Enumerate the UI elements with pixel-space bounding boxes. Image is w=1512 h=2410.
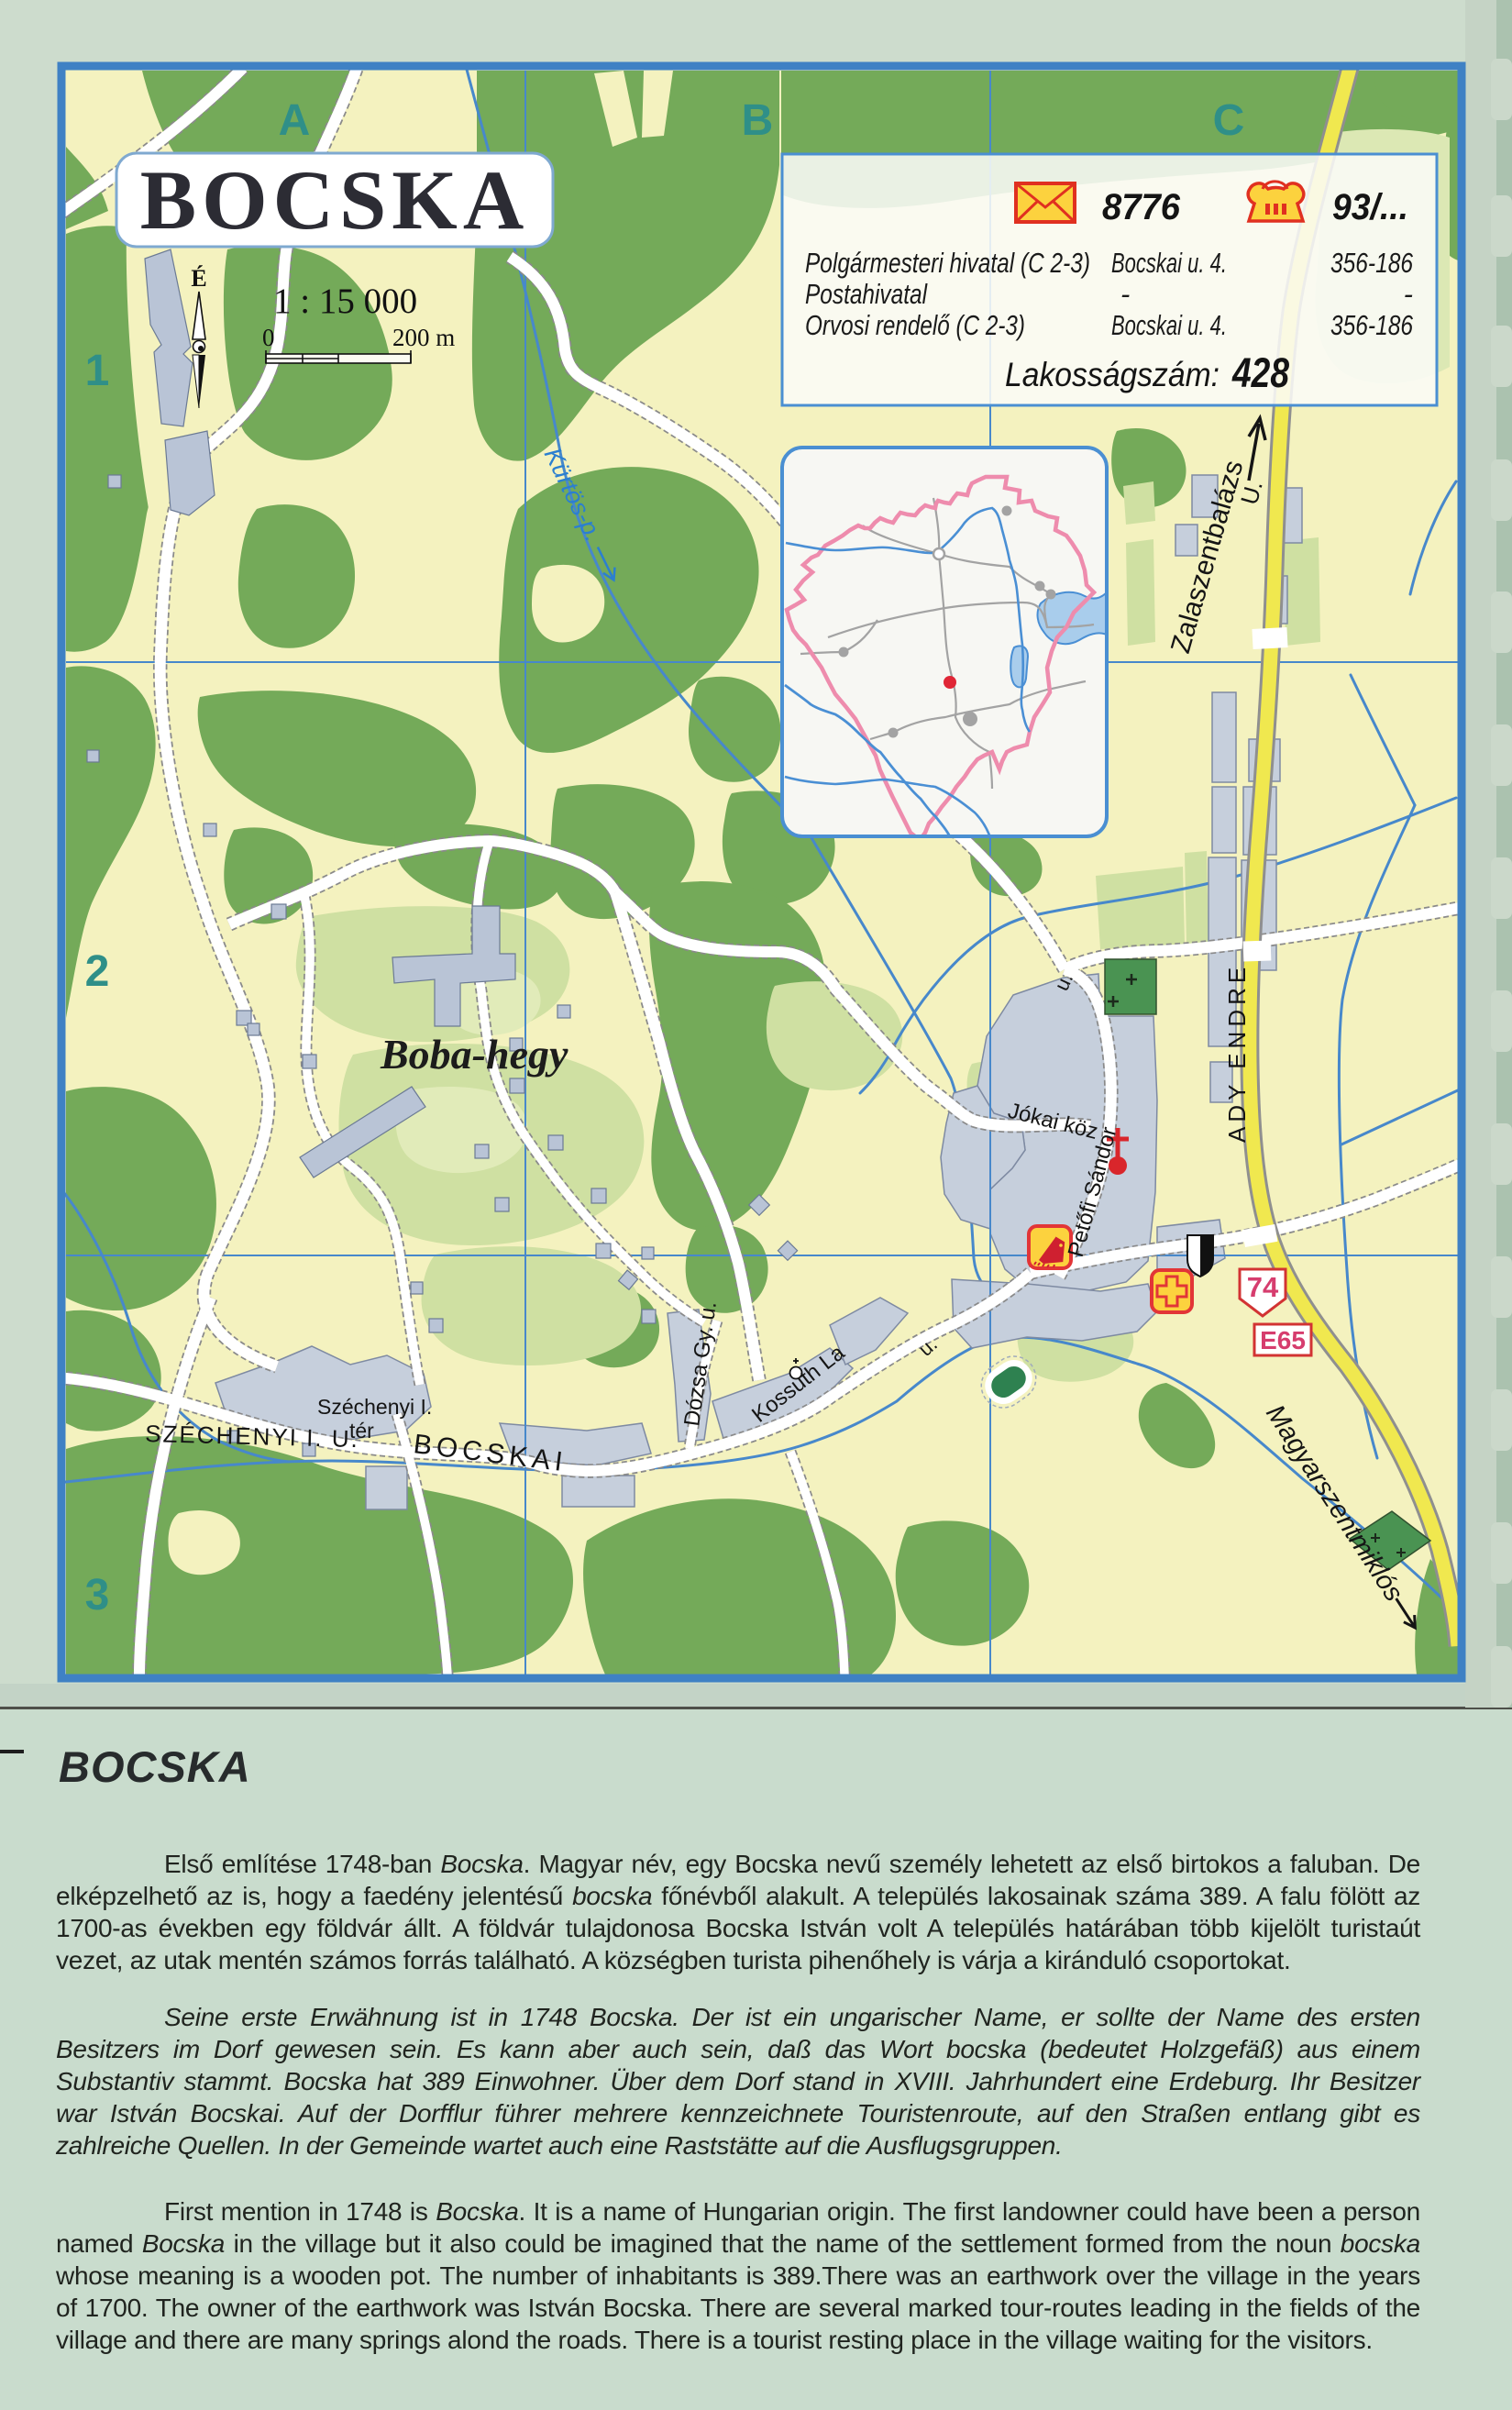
svg-text:1: 1 <box>85 347 110 395</box>
svg-text:356-186: 356-186 <box>1330 309 1414 341</box>
svg-text:428: 428 <box>1231 349 1289 396</box>
svg-text:Lakosságszám:: Lakosságszám: <box>1005 356 1220 393</box>
svg-text:Széchenyi I.: Széchenyi I. <box>317 1395 432 1419</box>
svg-text:1 : 15 000: 1 : 15 000 <box>273 282 417 321</box>
svg-text:Postahivatal: Postahivatal <box>805 278 928 310</box>
svg-text:É: É <box>191 265 206 292</box>
svg-text:SZÉCHENYI I. U.: SZÉCHENYI I. U. <box>145 1420 359 1453</box>
svg-text:Polgármesteri hivatal (C 2-3): Polgármesteri hivatal (C 2-3) <box>805 247 1090 279</box>
svg-text:B: B <box>742 96 774 145</box>
svg-text:Boba-hegy: Boba-hegy <box>380 1031 568 1078</box>
svg-text:-: - <box>1120 278 1130 310</box>
svg-text:Orvosi rendelő (C 2-3): Orvosi rendelő (C 2-3) <box>805 309 1025 341</box>
svg-text:74: 74 <box>1247 1271 1279 1303</box>
svg-text:tér: tér <box>349 1419 374 1443</box>
svg-text:0: 0 <box>262 324 275 351</box>
svg-text:200 m: 200 m <box>392 324 455 351</box>
svg-text:A: A <box>279 96 311 145</box>
svg-text:2: 2 <box>85 947 110 996</box>
svg-text:3: 3 <box>85 1571 110 1620</box>
svg-text:BOCSKA: BOCSKA <box>140 153 530 247</box>
svg-text:Bocskai u. 4.: Bocskai u. 4. <box>1111 309 1227 341</box>
svg-text:8776: 8776 <box>1102 187 1181 227</box>
svg-text:356-186: 356-186 <box>1330 247 1414 279</box>
svg-text:93/...: 93/... <box>1332 187 1408 227</box>
svg-text:C: C <box>1213 96 1245 145</box>
svg-text:ADY ENDRE: ADY ENDRE <box>1223 963 1251 1143</box>
svg-text:E65: E65 <box>1260 1326 1306 1354</box>
svg-text:-: - <box>1404 278 1413 310</box>
svg-text:Bocskai u. 4.: Bocskai u. 4. <box>1111 247 1227 279</box>
